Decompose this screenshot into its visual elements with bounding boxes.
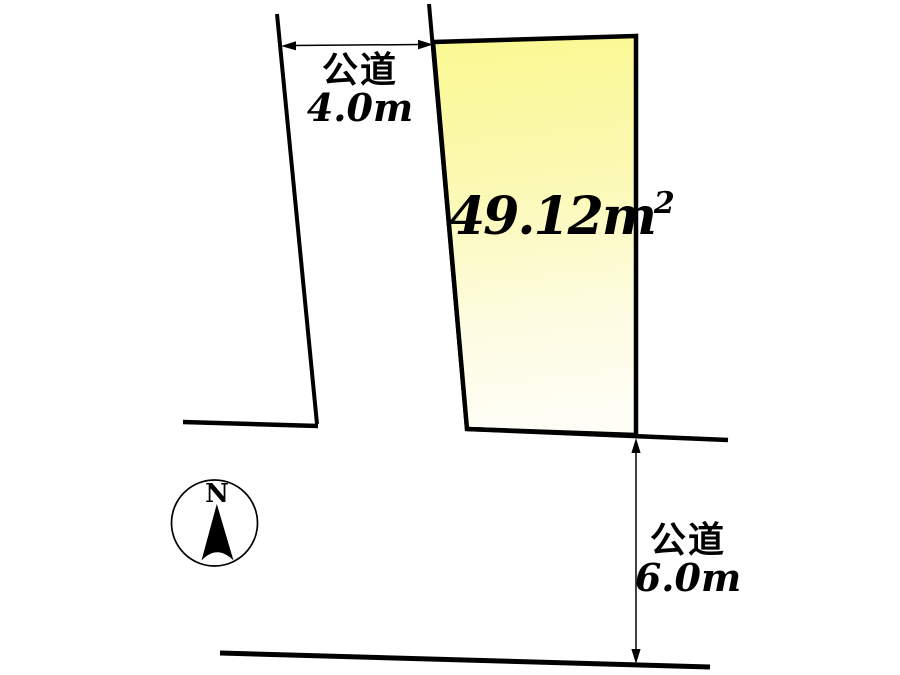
parcel-area-label: 49.12m2 xyxy=(449,193,675,249)
road-6m-label: 公道 6.0m xyxy=(600,522,776,596)
width-arrow-4m-line xyxy=(293,45,422,46)
road-4m-label: 公道 4.0m xyxy=(270,52,450,126)
road-6m-name: 公道 xyxy=(600,522,776,559)
road-4m-width: 4.0m xyxy=(270,89,450,126)
land-plot-diagram: 公道 4.0m 49.12m2 公道 6.0m N xyxy=(0,0,900,675)
road-4m-name: 公道 xyxy=(270,52,450,89)
parcel-area-superscript: 2 xyxy=(654,186,675,221)
road-6m-width: 6.0m xyxy=(600,559,776,596)
arrowhead-left-icon xyxy=(281,41,296,50)
left-road-corner-line xyxy=(183,422,318,426)
arrowhead-up-icon xyxy=(631,438,640,453)
arrowhead-down-icon xyxy=(631,649,640,664)
compass-north-label: N xyxy=(197,481,237,507)
parcel-area-value: 49.12m xyxy=(449,186,655,247)
